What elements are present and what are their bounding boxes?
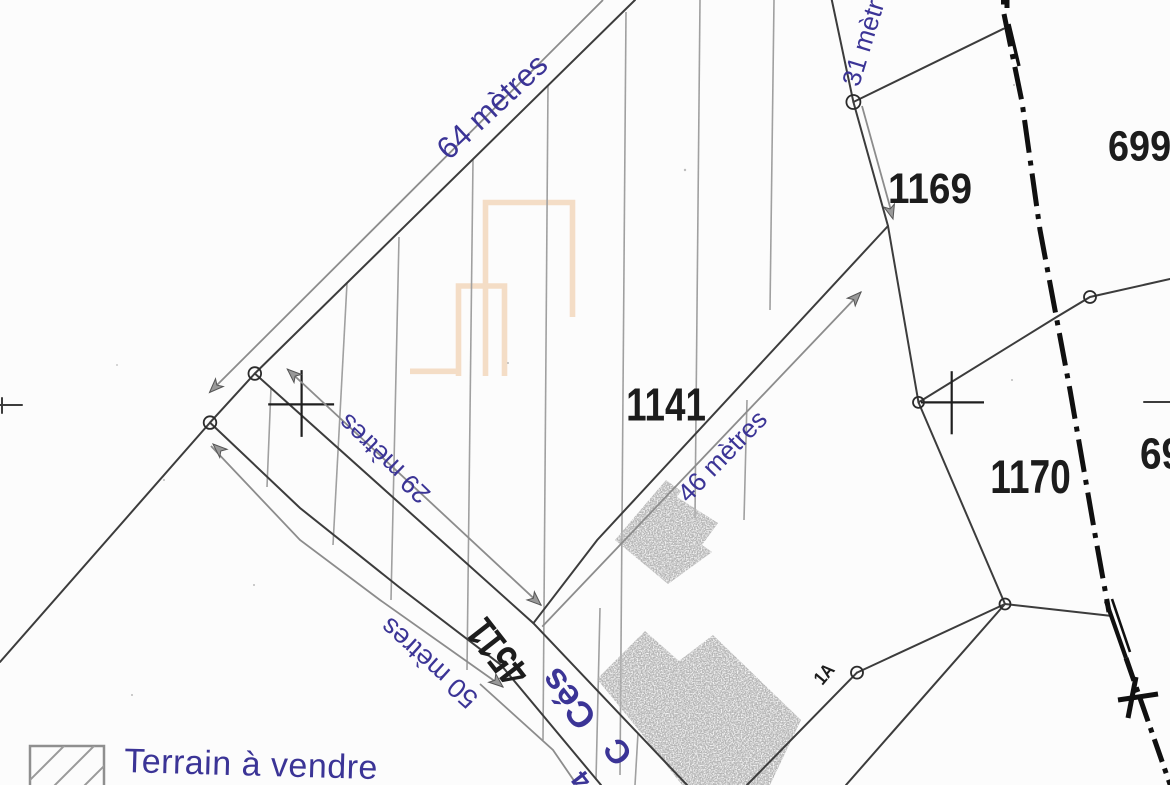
- svg-text:699: 699: [1140, 428, 1170, 478]
- svg-text:1170: 1170: [990, 451, 1071, 503]
- svg-text:1169: 1169: [888, 164, 972, 212]
- svg-text:699: 699: [1108, 121, 1170, 170]
- svg-text:Terrain à vendre: Terrain à vendre: [124, 742, 379, 785]
- svg-text:1141: 1141: [626, 379, 706, 431]
